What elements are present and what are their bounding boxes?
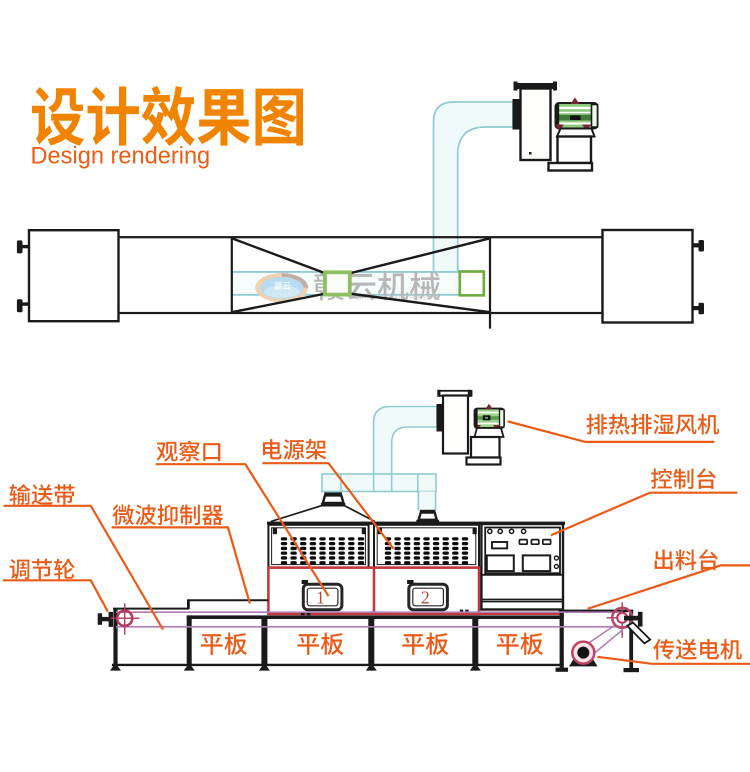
svg-text:2: 2 xyxy=(421,587,430,607)
svg-text:GANYUN: GANYUN xyxy=(272,291,291,296)
svg-text:Design rendering: Design rendering xyxy=(31,144,211,170)
svg-text:1: 1 xyxy=(316,587,325,607)
